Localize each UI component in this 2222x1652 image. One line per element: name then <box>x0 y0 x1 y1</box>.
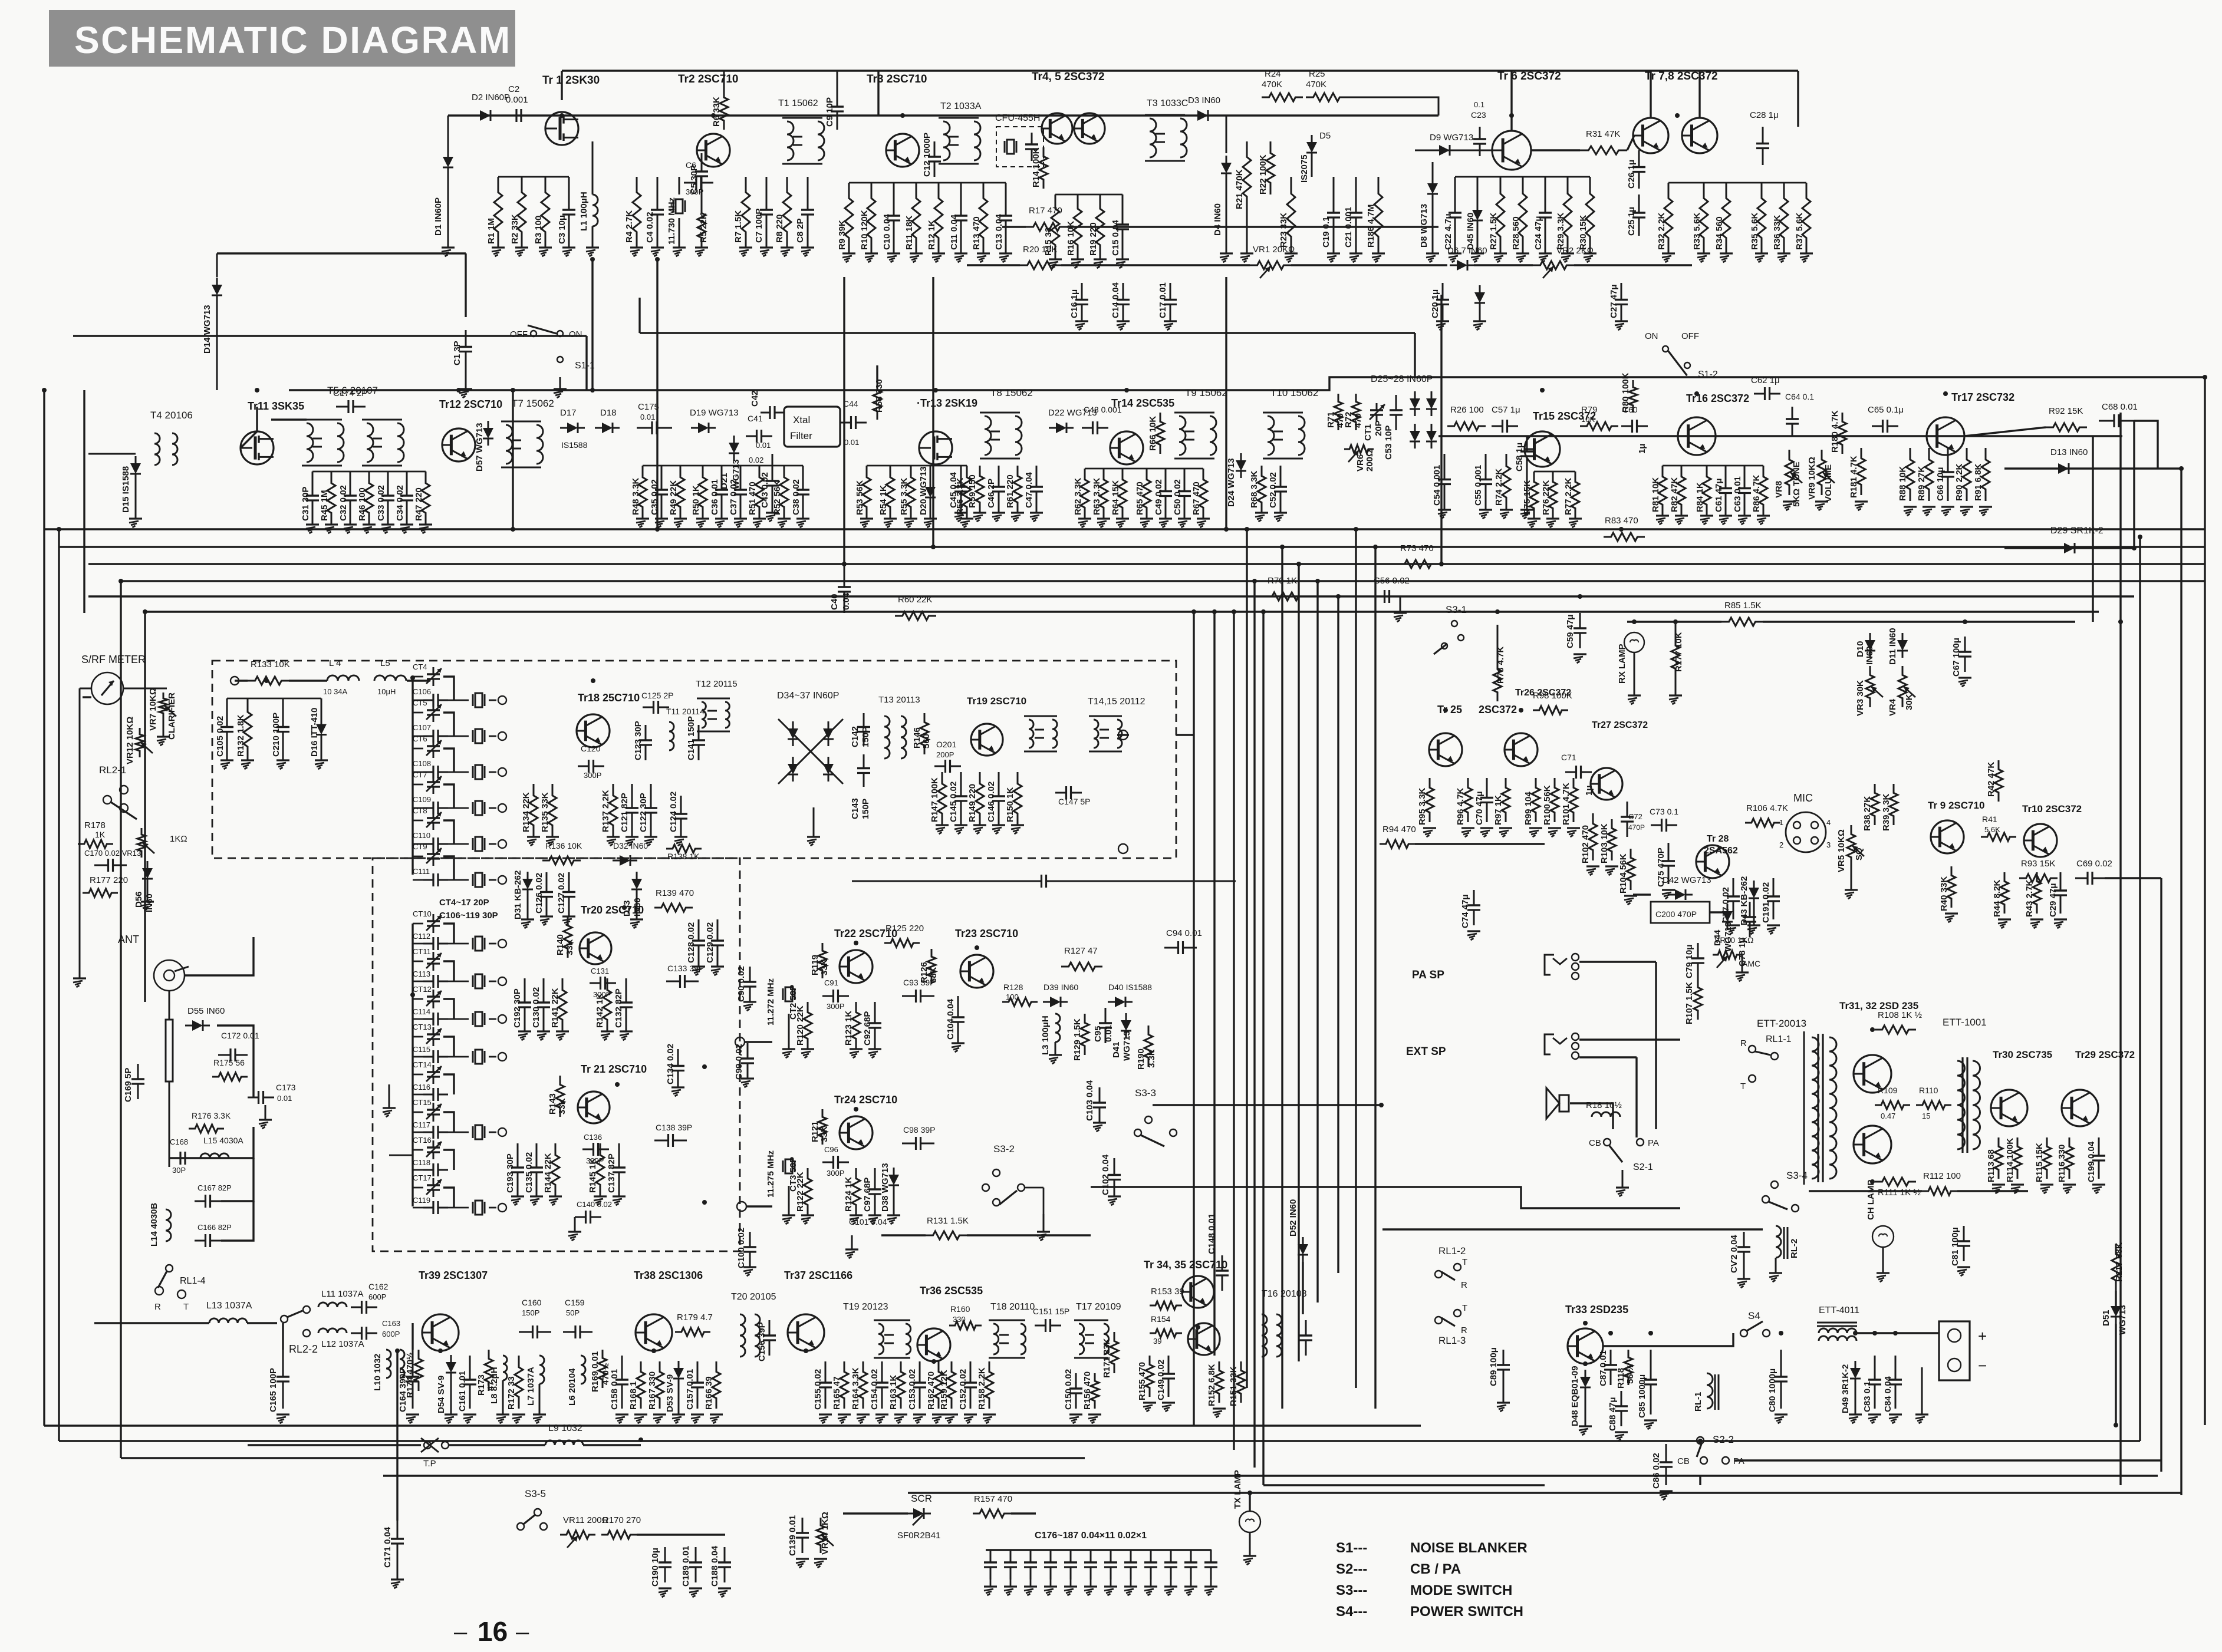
svg-text:C118: C118 <box>413 1158 430 1167</box>
svg-text:D3 IN60: D3 IN60 <box>1188 95 1220 105</box>
svg-text:C97 68P: C97 68P <box>863 1178 873 1212</box>
svg-text:CT14: CT14 <box>413 1060 432 1069</box>
svg-text:RL-1: RL-1 <box>1693 1392 1703 1412</box>
svg-text:R151 33K: R151 33K <box>1229 1366 1239 1406</box>
svg-text:300P: 300P <box>584 771 601 780</box>
svg-text:150P: 150P <box>861 727 871 747</box>
svg-text:R142 1K: R142 1K <box>595 993 605 1028</box>
svg-text:R138 1K: R138 1K <box>667 852 700 861</box>
svg-text:R88 10K: R88 10K <box>1898 466 1908 501</box>
svg-text:C13 0.04: C13 0.04 <box>994 213 1004 250</box>
svg-text:C100 0.02: C100 0.02 <box>736 1228 746 1268</box>
svg-text:R165 47: R165 47 <box>832 1376 842 1410</box>
svg-text:CT4: CT4 <box>413 662 427 671</box>
svg-text:2: 2 <box>1779 840 1783 849</box>
svg-text:C22 4.7μ: C22 4.7μ <box>1443 213 1453 250</box>
svg-text:R65 470: R65 470 <box>1135 482 1145 515</box>
svg-text:T: T <box>1462 1303 1467 1313</box>
svg-text:C111: C111 <box>413 867 430 876</box>
svg-text:C19 0.1: C19 0.1 <box>1321 216 1331 248</box>
svg-text:C117: C117 <box>413 1120 430 1129</box>
svg-text:C175: C175 <box>638 402 659 412</box>
svg-text:C145 0.02: C145 0.02 <box>949 782 959 822</box>
svg-text:R75 15K: R75 15K <box>1522 480 1532 515</box>
svg-text:R40 33K: R40 33K <box>1939 876 1949 911</box>
svg-text:R13 470: R13 470 <box>972 216 982 250</box>
svg-text:R98 100K: R98 100K <box>1533 691 1572 701</box>
svg-text:C11 0.04: C11 0.04 <box>949 214 959 250</box>
svg-text:C166 82P: C166 82P <box>197 1223 232 1232</box>
svg-text:C113: C113 <box>413 970 430 978</box>
svg-text:R83 470: R83 470 <box>1605 516 1638 526</box>
svg-text:S1---: S1--- <box>1336 1540 1367 1556</box>
svg-text:C47 0.04: C47 0.04 <box>1024 471 1034 508</box>
svg-text:R147 100K: R147 100K <box>930 777 940 822</box>
svg-text:R133 10K: R133 10K <box>251 660 290 670</box>
svg-text:CT13: CT13 <box>413 1023 432 1031</box>
svg-text:C135 0.02: C135 0.02 <box>524 1152 534 1193</box>
svg-text:R120 22K: R120 22K <box>795 1005 805 1046</box>
svg-text:C156 39P: C156 39P <box>757 1322 767 1361</box>
svg-text:R41: R41 <box>1982 815 1997 824</box>
svg-text:S2-2: S2-2 <box>1713 1434 1734 1445</box>
svg-text:CѴ2 0.04: CѴ2 0.04 <box>1729 1235 1739 1273</box>
svg-text:R141 22K: R141 22K <box>550 988 560 1028</box>
svg-text:VOLUME: VOLUME <box>1823 464 1833 502</box>
svg-text:R34 560: R34 560 <box>1714 216 1724 250</box>
svg-text:C127 0.02: C127 0.02 <box>557 873 567 914</box>
svg-text:Xtal: Xtal <box>793 414 810 426</box>
svg-text:C85 1000μ: C85 1000μ <box>1637 1374 1647 1418</box>
svg-text:C120: C120 <box>581 744 601 753</box>
svg-text:R136 10K: R136 10K <box>545 841 582 850</box>
svg-text:T7 15062: T7 15062 <box>512 398 554 409</box>
svg-text:VR10 1KΩ: VR10 1KΩ <box>1714 935 1754 945</box>
svg-text:D21: D21 <box>719 473 729 489</box>
svg-text:Tr18 25C710: Tr18 25C710 <box>578 692 640 704</box>
svg-text:Tr36 2SC535: Tr36 2SC535 <box>920 1285 983 1297</box>
svg-text:R163 1K: R163 1K <box>888 1375 898 1410</box>
svg-text:CB: CB <box>1589 1138 1601 1148</box>
svg-text:·Tr13 2SK19: ·Tr13 2SK19 <box>917 397 977 409</box>
svg-text:D9 WG713: D9 WG713 <box>1430 133 1473 143</box>
svg-text:C73 0.1: C73 0.1 <box>1650 807 1678 816</box>
svg-text:C4 0.02: C4 0.02 <box>645 212 655 243</box>
svg-text:T17 20109: T17 20109 <box>1076 1302 1121 1312</box>
svg-text:CT15: CT15 <box>413 1098 432 1107</box>
svg-text:D53 SV-9: D53 SV-9 <box>665 1374 675 1412</box>
svg-text:300P: 300P <box>686 187 703 196</box>
svg-text:4: 4 <box>1826 818 1831 827</box>
svg-text:R47 220: R47 220 <box>414 487 424 521</box>
svg-text:D49 3R1K-2: D49 3R1K-2 <box>1841 1364 1851 1413</box>
svg-text:C142: C142 <box>850 726 860 747</box>
svg-text:D10: D10 <box>1855 641 1865 657</box>
svg-text:C131: C131 <box>591 967 609 975</box>
svg-text:15: 15 <box>1922 1112 1930 1120</box>
svg-text:D16 ITT-410: D16 ITT-410 <box>310 708 320 757</box>
svg-text:D17: D17 <box>560 408 577 418</box>
svg-text:C14 0.04: C14 0.04 <box>1111 282 1121 318</box>
svg-text:470: 470 <box>1353 413 1363 428</box>
svg-text:R155 470: R155 470 <box>1137 1362 1147 1400</box>
svg-text:D48 EQB01-09: D48 EQB01-09 <box>1570 1366 1580 1426</box>
svg-text:C87 0.01: C87 0.01 <box>1598 1350 1608 1386</box>
svg-text:R117 68K: R117 68K <box>2114 1242 2124 1282</box>
svg-text:C164 390P: C164 390P <box>398 1368 408 1412</box>
svg-text:C170 0.02 VR13: C170 0.02 VR13 <box>84 849 141 858</box>
svg-text:R113 68: R113 68 <box>1986 1149 1996 1182</box>
svg-text:150P: 150P <box>522 1308 539 1317</box>
svg-text:C91: C91 <box>824 978 838 987</box>
svg-text:C38 0.02: C38 0.02 <box>791 479 801 515</box>
svg-text:R99 104: R99 104 <box>1523 792 1533 825</box>
svg-text:0.02: 0.02 <box>749 456 763 464</box>
svg-text:C59 47μ: C59 47μ <box>1565 614 1575 648</box>
svg-text:D34~37 IN60P: D34~37 IN60P <box>777 691 839 701</box>
svg-text:C31 30P: C31 30P <box>301 487 311 521</box>
svg-text:R140: R140 <box>555 934 565 955</box>
svg-text:C174 2P: C174 2P <box>333 388 367 398</box>
svg-text:C32 0.02: C32 0.02 <box>338 485 348 521</box>
svg-text:R107 1.5K: R107 1.5K <box>1684 982 1694 1024</box>
svg-text:3: 3 <box>1826 840 1831 849</box>
svg-text:11.730 MHz: 11.730 MHz <box>667 197 677 245</box>
svg-text:R154: R154 <box>1151 1314 1171 1324</box>
svg-text:R175 56: R175 56 <box>213 1058 245 1067</box>
svg-text:300P: 300P <box>827 1002 844 1011</box>
svg-text:Tr33 2SD235: Tr33 2SD235 <box>1565 1304 1628 1315</box>
svg-text:R159 12K: R159 12K <box>939 1370 949 1410</box>
svg-text:C190 10μ: C190 10μ <box>650 1548 660 1587</box>
svg-text:600P: 600P <box>382 1330 400 1338</box>
svg-text:C130 0.02: C130 0.02 <box>531 987 541 1028</box>
svg-text:C147 5P: C147 5P <box>1058 797 1090 806</box>
svg-text:CB: CB <box>1677 1456 1690 1466</box>
svg-text:C139 0.01: C139 0.01 <box>788 1515 798 1556</box>
svg-text:C33 0.02: C33 0.02 <box>376 485 386 521</box>
svg-text:S2---: S2--- <box>1336 1561 1367 1577</box>
svg-text:R84 1K: R84 1K <box>1695 482 1705 512</box>
svg-text:T8 15062: T8 15062 <box>990 387 1033 398</box>
svg-text:CT4~17 20P: CT4~17 20P <box>439 898 489 908</box>
svg-text:C168: C168 <box>170 1137 188 1146</box>
svg-text:R30 15K: R30 15K <box>1578 215 1588 250</box>
svg-text:R81 10K: R81 10K <box>1651 477 1661 512</box>
svg-text:C169 5P: C169 5P <box>123 1068 133 1102</box>
svg-text:CB / PA: CB / PA <box>1410 1561 1461 1577</box>
svg-text:R132 1.8K: R132 1.8K <box>236 714 246 757</box>
svg-text:Tr24 2SC710: Tr24 2SC710 <box>834 1094 897 1106</box>
svg-text:VR6: VR6 <box>1355 454 1365 471</box>
svg-text:C109: C109 <box>413 795 431 804</box>
svg-text:33K: 33K <box>819 959 829 975</box>
svg-text:R61 220: R61 220 <box>1005 474 1015 508</box>
svg-text:C171 0.04: C171 0.04 <box>383 1526 393 1568</box>
svg-text:C94 0.01: C94 0.01 <box>1166 928 1202 938</box>
svg-text:C193 30P: C193 30P <box>505 1153 515 1193</box>
svg-text:VR12 10KΩ: VR12 10KΩ <box>125 717 135 764</box>
svg-text:D8 WG713: D8 WG713 <box>1419 204 1429 248</box>
svg-text:R102 470: R102 470 <box>1581 825 1591 863</box>
svg-text:SF0R2B41: SF0R2B41 <box>897 1531 940 1541</box>
svg-text:C123 30P: C123 30P <box>633 721 643 760</box>
svg-text:R21 470K: R21 470K <box>1235 169 1245 209</box>
svg-text:33K: 33K <box>565 939 575 955</box>
svg-text:C3 10μ: C3 10μ <box>557 215 567 244</box>
svg-text:R89 27K: R89 27K <box>1917 466 1927 501</box>
svg-text:R49 22K: R49 22K <box>669 480 679 515</box>
svg-text:R10 120K: R10 120K <box>860 210 870 250</box>
svg-text:Tr 28: Tr 28 <box>1707 834 1729 844</box>
svg-text:R18 10½: R18 10½ <box>1586 1100 1622 1110</box>
svg-text:R78 4.7K: R78 4.7K <box>1496 646 1506 684</box>
svg-text:R35 5.6K: R35 5.6K <box>1750 212 1760 250</box>
svg-text:ON: ON <box>569 329 582 339</box>
svg-text:0.01: 0.01 <box>756 441 771 450</box>
svg-text:L6 20104: L6 20104 <box>567 1368 577 1406</box>
svg-text:R166 39: R166 39 <box>704 1376 714 1410</box>
svg-text:S3-4: S3-4 <box>1786 1170 1808 1181</box>
svg-text:R51 470: R51 470 <box>748 482 758 515</box>
svg-text:Tr19 2SC710: Tr19 2SC710 <box>967 695 1026 707</box>
svg-text:0.01: 0.01 <box>1104 1025 1114 1042</box>
svg-text:R123 1K: R123 1K <box>844 1011 854 1046</box>
svg-text:CT5: CT5 <box>413 698 427 707</box>
svg-text:300P: 300P <box>827 1169 844 1178</box>
svg-text:CT11: CT11 <box>413 947 431 956</box>
svg-text:C84 0.04: C84 0.04 <box>1883 1376 1893 1412</box>
svg-text:R42 47K: R42 47K <box>1986 762 1996 797</box>
svg-text:Tr30 2SC735: Tr30 2SC735 <box>1993 1049 2052 1060</box>
svg-text:ANT: ANT <box>118 934 139 945</box>
svg-text:C128 0.02: C128 0.02 <box>686 922 696 963</box>
svg-text:R144 22K: R144 22K <box>543 1153 553 1193</box>
svg-text:C106: C106 <box>413 687 431 696</box>
svg-text:R33 5.6K: R33 5.6K <box>1692 212 1702 250</box>
svg-text:C8 2P: C8 2P <box>795 218 805 243</box>
svg-text:T1 15062: T1 15062 <box>778 98 818 108</box>
svg-text:R145 1K: R145 1K <box>588 1158 598 1193</box>
svg-text:C92 68P: C92 68P <box>863 1011 873 1046</box>
svg-text:R4 2.7K: R4 2.7K <box>624 210 634 243</box>
svg-text:CLARIFIER: CLARIFIER <box>167 693 177 740</box>
svg-text:R36 33K: R36 33K <box>1772 215 1782 250</box>
svg-text:C146 0.02: C146 0.02 <box>986 782 996 822</box>
svg-text:EXT SP: EXT SP <box>1406 1046 1446 1058</box>
svg-text:T12 20115: T12 20115 <box>696 679 738 689</box>
svg-text:R29 3.3K: R29 3.3K <box>1556 212 1566 250</box>
svg-text:R103 10K: R103 10K <box>1599 823 1609 863</box>
svg-text:C132 82P: C132 82P <box>614 988 624 1028</box>
svg-text:VR4: VR4 <box>1888 698 1898 716</box>
svg-text:AMC: AMC <box>1742 959 1760 968</box>
svg-text:C107: C107 <box>413 723 431 732</box>
svg-text:S2-1: S2-1 <box>1633 1162 1653 1172</box>
svg-text:R116 330: R116 330 <box>2057 1145 2067 1182</box>
svg-text:T: T <box>1462 1257 1467 1267</box>
svg-text:C12 1000P: C12 1000P <box>922 133 932 177</box>
svg-text:SCR: SCR <box>911 1493 932 1504</box>
svg-text:R79: R79 <box>1581 405 1598 415</box>
svg-text:R63 3.3K: R63 3.3K <box>1092 477 1102 515</box>
svg-text:C153 0.02: C153 0.02 <box>907 1369 917 1410</box>
svg-text:R112 100: R112 100 <box>1923 1171 1961 1181</box>
svg-text:IN60: IN60 <box>1865 646 1875 665</box>
svg-text:CT17: CT17 <box>413 1173 432 1182</box>
svg-text:–: – <box>516 1619 529 1645</box>
svg-text:Tr23 2SC710: Tr23 2SC710 <box>955 928 1018 939</box>
svg-text:–: – <box>454 1619 468 1645</box>
svg-text:C90 0.02: C90 0.02 <box>736 966 746 1002</box>
svg-text:R110: R110 <box>1919 1086 1938 1095</box>
svg-text:D13 IN60: D13 IN60 <box>2050 447 2088 457</box>
svg-text:2SC372: 2SC372 <box>1479 704 1517 715</box>
svg-text:D42 WG713: D42 WG713 <box>1663 875 1711 885</box>
svg-text:R170 270: R170 270 <box>603 1515 641 1525</box>
svg-text:C25 1μ: C25 1μ <box>1627 207 1637 236</box>
svg-text:R1 1M: R1 1M <box>486 218 496 244</box>
svg-text:RL1-3: RL1-3 <box>1438 1335 1466 1346</box>
svg-text:1: 1 <box>1779 818 1783 827</box>
svg-text:10 34A: 10 34A <box>323 687 348 696</box>
svg-text:R104 56K: R104 56K <box>1618 853 1628 893</box>
svg-text:S3-2: S3-2 <box>993 1143 1015 1155</box>
svg-text:C154 0.02: C154 0.02 <box>870 1369 880 1410</box>
svg-text:R131 1.5K: R131 1.5K <box>927 1216 969 1226</box>
svg-text:C20 1μ: C20 1μ <box>1430 289 1440 318</box>
svg-text:C157 0.01: C157 0.01 <box>685 1369 695 1410</box>
svg-text:PA SP: PA SP <box>1412 969 1444 981</box>
svg-text:R22 100K: R22 100K <box>1258 154 1268 194</box>
svg-text:R150 1K: R150 1K <box>1005 787 1015 822</box>
svg-text:11.275 MHz: 11.275 MHz <box>766 1150 776 1198</box>
svg-text:C63 0.01: C63 0.01 <box>1733 476 1743 512</box>
svg-text:CT10: CT10 <box>413 909 432 918</box>
svg-text:TX LAMP: TX LAMP <box>1233 1470 1243 1509</box>
svg-text:C65 0.1μ: C65 0.1μ <box>1868 405 1904 415</box>
svg-text:T2 1033A: T2 1033A <box>940 101 982 111</box>
svg-text:S/RF METER: S/RF METER <box>81 654 146 665</box>
svg-text:C42: C42 <box>750 390 760 407</box>
svg-text:R50 1K: R50 1K <box>691 485 701 515</box>
svg-text:R12 1K: R12 1K <box>927 220 937 250</box>
svg-text:C98 39P: C98 39P <box>903 1125 935 1135</box>
svg-text:CT7: CT7 <box>413 770 427 779</box>
svg-text:0.01: 0.01 <box>277 1094 292 1103</box>
svg-text:IS1588: IS1588 <box>561 440 588 450</box>
svg-text:L 4: L 4 <box>329 658 341 668</box>
svg-text:L3 100μH: L3 100μH <box>1041 1015 1051 1055</box>
svg-text:POWER SWITCH: POWER SWITCH <box>1410 1604 1523 1620</box>
svg-text:R68 3.3K: R68 3.3K <box>1249 470 1259 508</box>
svg-text:C122 30P: C122 30P <box>638 793 649 832</box>
svg-text:C160: C160 <box>522 1298 542 1307</box>
svg-text:T10 15062: T10 15062 <box>1270 387 1318 398</box>
svg-text:C150 0.02: C150 0.02 <box>1064 1369 1074 1410</box>
svg-text:50P: 50P <box>566 1308 580 1317</box>
svg-text:R177 220: R177 220 <box>90 875 128 885</box>
svg-text:R20 18K: R20 18K <box>1023 245 1057 255</box>
svg-text:C110: C110 <box>413 831 430 840</box>
svg-text:RL2-2: RL2-2 <box>289 1343 318 1355</box>
svg-text:RL-2: RL-2 <box>1789 1239 1799 1258</box>
svg-text:CT8: CT8 <box>413 806 427 815</box>
svg-text:T3 1033C: T3 1033C <box>1147 98 1188 108</box>
svg-text:R71: R71 <box>1326 411 1336 428</box>
svg-text:MIC: MIC <box>1793 792 1813 804</box>
svg-text:R156 470: R156 470 <box>1082 1371 1092 1410</box>
svg-text:R31 47K: R31 47K <box>1586 129 1620 139</box>
svg-text:20P: 20P <box>1374 420 1384 436</box>
svg-text:R76 22K: R76 22K <box>1541 480 1551 515</box>
svg-text:S3-3: S3-3 <box>1135 1087 1156 1099</box>
svg-text:R60 22K: R60 22K <box>898 595 932 605</box>
svg-text:R96 4.7K: R96 4.7K <box>1456 787 1466 825</box>
svg-text:R127 47: R127 47 <box>1064 946 1098 956</box>
svg-text:D14 WG713: D14 WG713 <box>202 305 212 354</box>
svg-text:D31 KB-262: D31 KB-262 <box>513 870 523 919</box>
svg-text:R26 100: R26 100 <box>1450 405 1484 415</box>
svg-text:CH LAMP: CH LAMP <box>1866 1180 1876 1220</box>
svg-text:Tr2 2SC710: Tr2 2SC710 <box>678 73 738 85</box>
svg-text:C191 0.02: C191 0.02 <box>1761 882 1771 923</box>
svg-text:600P: 600P <box>368 1292 386 1301</box>
svg-text:R3 100: R3 100 <box>534 216 544 244</box>
svg-text:R115 15K: R115 15K <box>2035 1143 2045 1182</box>
svg-text:R94 470: R94 470 <box>1382 825 1416 835</box>
svg-text:R: R <box>154 1302 161 1312</box>
svg-text:C125 2P: C125 2P <box>641 691 673 700</box>
svg-text:C28 1μ: C28 1μ <box>1750 110 1779 120</box>
svg-text:VR11 200Ω: VR11 200Ω <box>563 1515 608 1525</box>
svg-text:D2 IN60P: D2 IN60P <box>472 93 510 103</box>
svg-text:WG713: WG713 <box>1122 1031 1132 1061</box>
svg-text:R8 220: R8 220 <box>775 215 785 243</box>
svg-text:R153 39: R153 39 <box>1151 1287 1184 1297</box>
svg-text:S3-1: S3-1 <box>1446 604 1467 615</box>
svg-text:C61 47μ: C61 47μ <box>1714 478 1724 512</box>
svg-text:T13 20113: T13 20113 <box>878 695 920 705</box>
svg-text:C36 0.01: C36 0.01 <box>710 479 720 515</box>
svg-text:16: 16 <box>478 1616 508 1647</box>
svg-text:1μ: 1μ <box>1637 443 1647 454</box>
svg-text:R37 5.6K: R37 5.6K <box>1795 212 1805 250</box>
svg-text:T11 20114: T11 20114 <box>666 707 705 716</box>
svg-text:R181 4.7K: R181 4.7K <box>1849 456 1859 498</box>
svg-text:R7 1.5K: R7 1.5K <box>733 210 743 243</box>
svg-text:R2 33K: R2 33K <box>510 214 520 244</box>
svg-text:R77 2.2K: R77 2.2K <box>1563 477 1573 515</box>
svg-text:MODE SWITCH: MODE SWITCH <box>1410 1582 1512 1598</box>
svg-text:R180 4.7K: R180 4.7K <box>1830 410 1840 453</box>
svg-text:RL1-4: RL1-4 <box>180 1276 206 1286</box>
svg-text:RL1-1: RL1-1 <box>1766 1034 1792 1044</box>
svg-text:R74 2.2K: R74 2.2K <box>1494 468 1504 506</box>
svg-text:C151 15P: C151 15P <box>1033 1307 1069 1316</box>
svg-text:Tr 1 2SK30: Tr 1 2SK30 <box>542 74 600 87</box>
svg-text:C158 0.01: C158 0.01 <box>610 1369 620 1410</box>
svg-text:C114: C114 <box>413 1007 430 1016</box>
svg-text:C148 0.01: C148 0.01 <box>1207 1214 1217 1254</box>
svg-text:R80 100K: R80 100K <box>1621 372 1631 413</box>
svg-text:470K: 470K <box>1306 80 1326 90</box>
svg-text:L11 1037A: L11 1037A <box>321 1289 363 1299</box>
svg-text:Tr38 2SC1306: Tr38 2SC1306 <box>634 1269 703 1281</box>
svg-text:R108 1K ½: R108 1K ½ <box>1878 1010 1923 1020</box>
svg-text:R86 4.7K: R86 4.7K <box>1752 474 1762 512</box>
svg-text:R62 3.3K: R62 3.3K <box>1073 477 1083 515</box>
